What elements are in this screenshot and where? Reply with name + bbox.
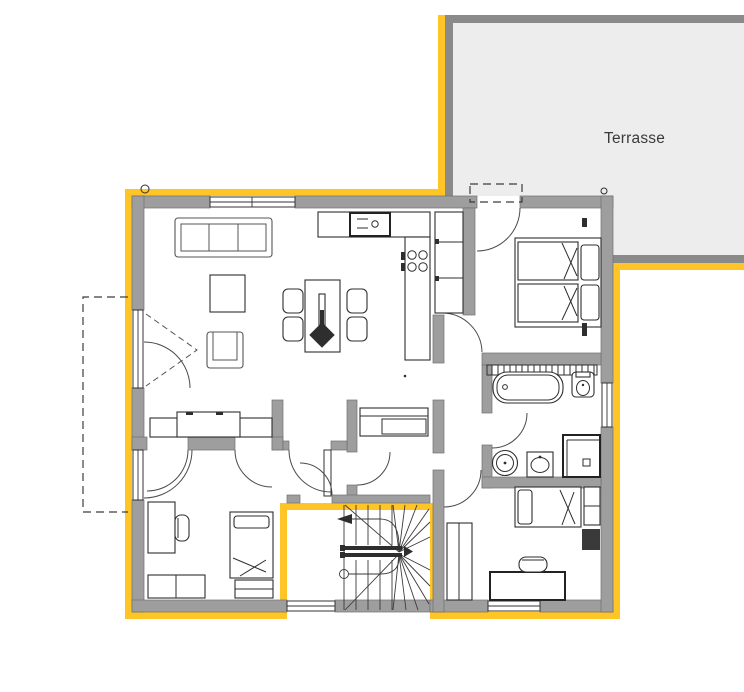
door-bedroom1	[443, 313, 482, 352]
bathroom	[487, 365, 600, 477]
wardrobe	[447, 523, 472, 600]
sofa	[175, 218, 272, 257]
staircase	[337, 505, 430, 610]
kitchen-counter-right	[405, 237, 430, 360]
window-bedroom2-bottom	[488, 601, 540, 611]
floor-plan: Terrasse	[0, 0, 744, 692]
terrace-border-bottom	[613, 255, 744, 263]
boundary-stair-top	[280, 503, 437, 510]
double-bed	[515, 238, 601, 327]
child-desk	[148, 502, 189, 553]
kitchen-sink	[350, 213, 390, 236]
terrace: Terrasse	[445, 15, 744, 263]
window-living-top	[210, 197, 295, 207]
child-bed	[230, 512, 273, 578]
toilet	[572, 372, 594, 397]
boundary-bottom-left	[125, 612, 287, 619]
single-bed	[515, 487, 581, 527]
washing-machine	[493, 451, 518, 476]
terrace-border-left	[445, 15, 453, 196]
wall-fixture	[582, 323, 587, 336]
wall-fixture	[582, 218, 587, 227]
door-vestibule	[289, 450, 331, 496]
boundary-top	[125, 189, 445, 196]
dining-table	[305, 280, 340, 352]
door-childroom-2	[235, 450, 272, 487]
nightstand	[584, 487, 600, 525]
terrace-floor	[453, 23, 744, 255]
door-childroom-1	[147, 450, 188, 491]
bathtub	[493, 372, 563, 403]
storage-room	[360, 408, 428, 436]
sideboard	[150, 412, 272, 437]
kitchen-tall-cabinets	[435, 212, 463, 313]
boundary-bottom-right	[430, 612, 620, 619]
boundary-right	[613, 263, 620, 619]
dresser	[148, 575, 205, 598]
boundary-terrace-left	[438, 15, 445, 196]
hallway	[150, 412, 272, 437]
shower	[563, 435, 600, 477]
door-bedroom2	[444, 470, 481, 507]
coffee-table	[210, 275, 245, 312]
bedroom-2	[447, 487, 600, 600]
terrace-border-top	[445, 15, 744, 23]
boundary-left	[125, 189, 132, 619]
window-stairwell-bottom	[287, 601, 335, 611]
door-storage	[357, 452, 390, 485]
wall-kitchen-bedroom	[463, 208, 475, 315]
ceiling-point	[404, 375, 407, 378]
projection-dashed-outline	[83, 297, 128, 512]
terrace-label: Terrasse	[604, 130, 665, 147]
door-living-balcony	[133, 310, 197, 388]
desk	[490, 557, 565, 600]
door-bathroom	[492, 413, 527, 448]
armchair	[207, 332, 243, 368]
child-room	[148, 502, 273, 598]
window-bathroom-right	[602, 383, 612, 427]
walk-line-arrow	[337, 514, 352, 524]
storage-shelf	[360, 408, 428, 436]
bathroom-sink	[527, 452, 553, 477]
child-nightstand	[235, 580, 273, 598]
wall-bedroom-bath	[482, 353, 601, 365]
bedroom-1	[515, 218, 601, 336]
door-childroom-balcony	[133, 450, 192, 500]
living-room	[175, 218, 367, 368]
boundary-terrace-bottom	[613, 263, 744, 270]
wall-bath-bedroom2	[482, 477, 601, 488]
wall-shelf	[582, 529, 600, 550]
